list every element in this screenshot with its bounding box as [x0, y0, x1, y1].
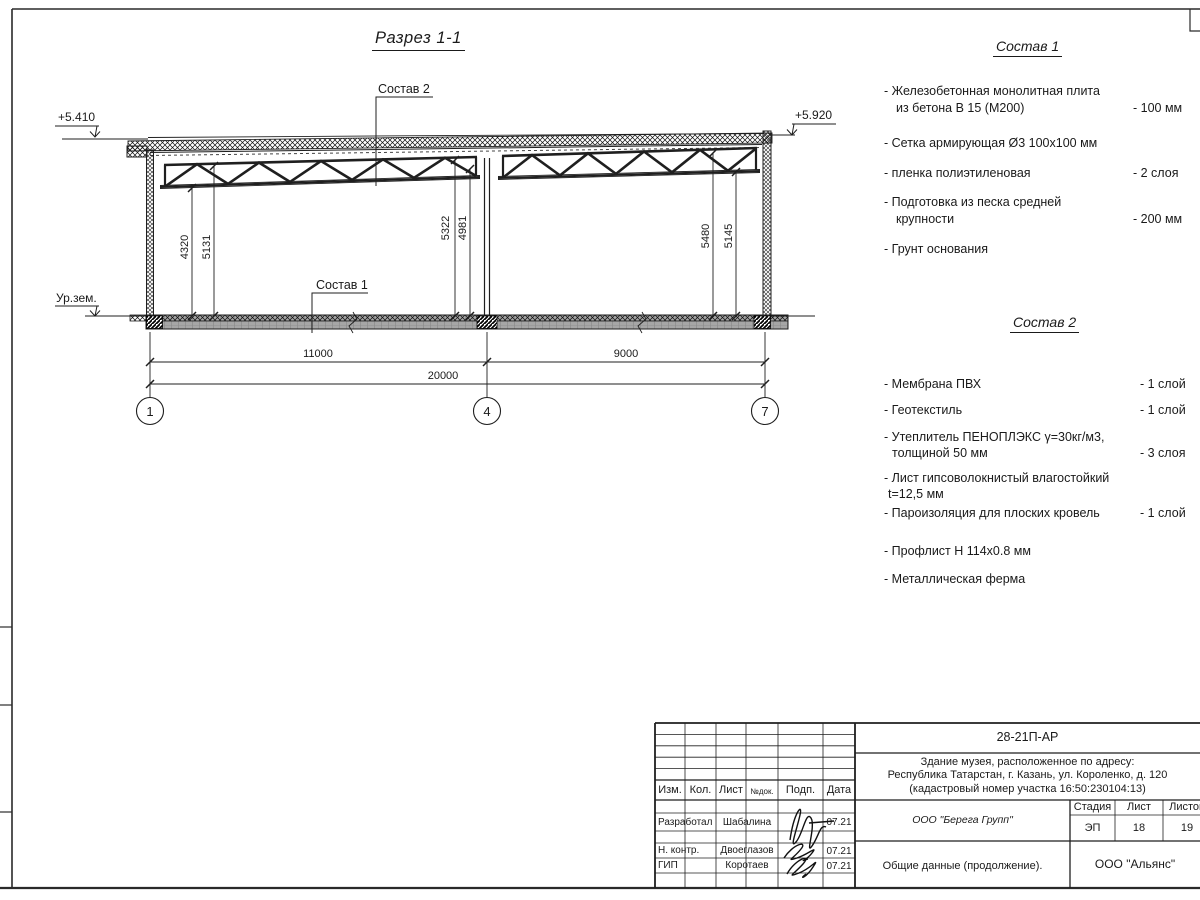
axis-bubbles — [137, 398, 779, 425]
org-name: ООО "Берега Групп" — [855, 814, 1070, 826]
truss-right — [498, 148, 760, 180]
dim-5145: 5145 — [723, 213, 735, 259]
axis-bubble-1: 1 — [135, 404, 165, 419]
row-gip-date: 07.21 — [823, 861, 855, 873]
row-nkontr-role: Н. контр. — [658, 845, 699, 857]
sostav2-item-4-line1: - Пароизоляция для плоских кровель — [884, 506, 1100, 520]
col-kol: Кол. — [685, 784, 716, 797]
sostav1-item-1-line1: - Сетка армирующая Ø3 100х100 мм — [884, 136, 1097, 150]
doc-number: 28-21П-АР — [855, 730, 1200, 744]
sostav2-item-2-line1: - Утеплитель ПЕНОПЛЭКС γ=30кг/м3, — [884, 430, 1104, 444]
sostav1-item-4-line1: - Грунт основания — [884, 242, 988, 256]
sheets-value: 19 — [1163, 822, 1200, 835]
section-title: Разрез 1-1 — [372, 29, 465, 51]
sostav2-item-6-line1: - Металлическая ферма — [884, 572, 1025, 586]
sostav2-item-0-line1: - Мембрана ПВХ — [884, 377, 981, 391]
sostav1-item-3-value: - 200 мм — [1133, 212, 1182, 226]
stage-label: Стадия — [1070, 801, 1115, 814]
ground-level-label: Ур.зем. — [56, 292, 97, 306]
sostav1-item-2-line1: - пленка полиэтиленовая — [884, 166, 1031, 180]
sostav2-title: Состав 2 — [1010, 314, 1079, 333]
row-nkontr-date: 07.21 — [823, 846, 855, 858]
elevation-left-label: +5.410 — [58, 111, 95, 125]
sostav1-item-0-line2: из бетона В 15 (М200) — [896, 101, 1024, 115]
sheet-value: 18 — [1115, 822, 1163, 835]
sheet-label: Лист — [1115, 801, 1163, 814]
sostav2-item-1-line1: - Геотекстиль — [884, 403, 962, 417]
sostav2-item-0-value: - 1 слой — [1140, 377, 1186, 391]
doc-title: Общие данные (продолжение). — [855, 860, 1070, 873]
col-ndok: №док. — [746, 787, 778, 796]
dim-9000: 9000 — [596, 348, 656, 361]
dim-5480: 5480 — [700, 213, 712, 259]
dim-4981: 4981 — [457, 205, 469, 251]
row-razrabotal-name: Шабалина — [716, 817, 778, 829]
sostav1-item-0-value: - 100 мм — [1133, 101, 1182, 115]
dim-20000: 20000 — [413, 370, 473, 383]
company-name: ООО "Альянс" — [1070, 858, 1200, 872]
sostav2-item-3-line1: - Лист гипсоволокнистый влагостойкий — [884, 471, 1109, 485]
leader-sostav2-label: Состав 2 — [378, 82, 430, 96]
dim-11000: 11000 — [288, 348, 348, 361]
col-data: Дата — [823, 784, 855, 797]
axis-bubble-4: 4 — [472, 404, 502, 419]
leader-sostav1-label: Состав 1 — [316, 278, 368, 292]
sostav2-item-1-value: - 1 слой — [1140, 403, 1186, 417]
dim-5131: 5131 — [201, 224, 213, 270]
project-line1: Здание музея, расположенное по адресу: — [855, 756, 1200, 769]
sostav2-item-2-value: - 3 слоя — [1140, 446, 1185, 460]
sostav2-item-3-line2: t=12,5 мм — [888, 487, 944, 501]
signature-gip — [787, 859, 816, 878]
truss-left — [160, 157, 480, 189]
dim-5322: 5322 — [440, 205, 452, 251]
elevation-right-label: +5.920 — [795, 109, 832, 123]
column-axis4 — [485, 158, 490, 316]
dim-4320: 4320 — [179, 224, 191, 270]
row-razrabotal-role: Разработал — [658, 817, 712, 829]
row-razrabotal-date: 07.21 — [823, 817, 855, 829]
sostav1-item-2-value: - 2 слоя — [1133, 166, 1178, 180]
sostav1-item-0-line1: - Железобетонная монолитная плита — [884, 84, 1100, 98]
signature-razrabotal — [790, 809, 834, 848]
floor-slab — [85, 312, 815, 333]
row-gip-name: Коротаев — [716, 860, 778, 872]
sostav2-item-5-line1: - Профлист Н 114х0.8 мм — [884, 544, 1031, 558]
col-list: Лист — [716, 784, 746, 797]
stage-value: ЭП — [1070, 822, 1115, 835]
sheets-label: Листов — [1163, 801, 1200, 814]
sostav2-item-2-line2: толщиной 50 мм — [892, 446, 988, 460]
sostav1-title: Состав 1 — [993, 38, 1062, 57]
sostav2-item-4-value: - 1 слой — [1140, 506, 1186, 520]
project-line3: (кадастровый номер участка 16:50:230104:… — [855, 783, 1200, 796]
project-line2: Республика Татарстан, г. Казань, ул. Кор… — [855, 769, 1200, 782]
axis-bubble-7: 7 — [750, 404, 780, 419]
row-gip-role: ГИП — [658, 860, 678, 872]
sostav1-item-3-line1: - Подготовка из песка средней — [884, 195, 1061, 209]
col-izm: Изм. — [655, 784, 685, 797]
sostav1-item-3-line2: крупности — [896, 212, 954, 226]
row-nkontr-name: Двоеглазов — [716, 845, 778, 857]
leader-lines — [312, 97, 433, 333]
drawing-sheet: Разрез 1-1 +5.410 +5.920 Ур.зем. Состав … — [0, 0, 1200, 900]
col-podp: Подп. — [778, 784, 823, 797]
